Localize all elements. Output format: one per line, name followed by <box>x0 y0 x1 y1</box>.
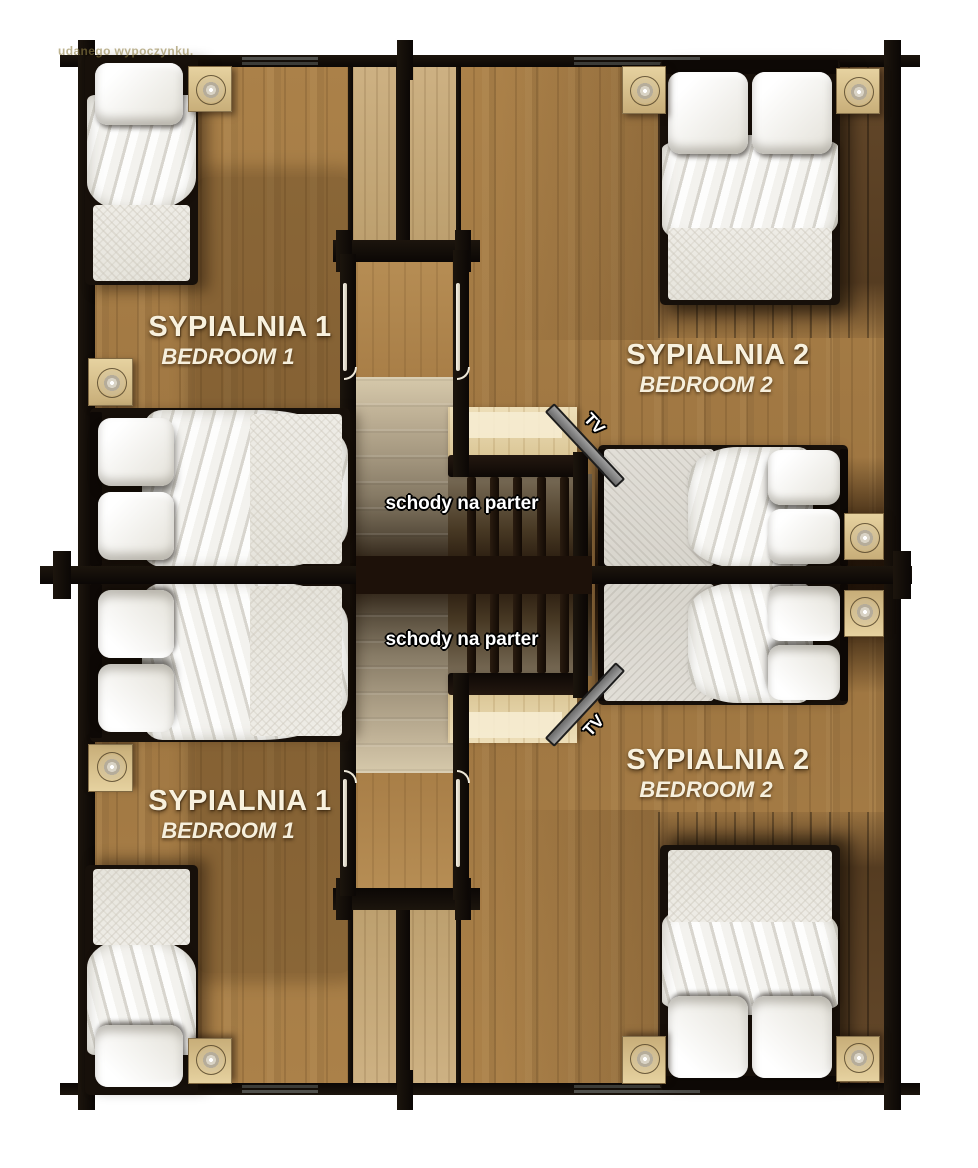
log-end-top-center <box>397 40 413 80</box>
room-label-bedroom1-bottom: SYPIALNIA 1 <box>148 785 331 818</box>
single-bed <box>85 865 198 1095</box>
nightstand <box>188 1038 232 1084</box>
bed-pillow <box>668 996 748 1078</box>
room-label-bedroom2-bottom: SYPIALNIA 2 <box>626 744 809 777</box>
bed-pillow <box>98 418 174 486</box>
door-leaf-right <box>456 779 460 867</box>
double-bed-mattress <box>250 586 342 736</box>
staircase-flight <box>356 377 453 575</box>
stair-landing-highlight <box>462 412 562 438</box>
double-bed-mattress <box>250 414 342 564</box>
headboard <box>662 1076 838 1090</box>
closet-divider-wall <box>396 67 410 240</box>
double-bed-right <box>598 445 848 570</box>
window-symbol <box>242 57 318 65</box>
room-sublabel-bedroom2-bottom: BEDROOM 2 <box>639 777 772 803</box>
log-end-middle-right <box>893 551 911 599</box>
double-bed-left <box>90 408 350 570</box>
bed-pillow <box>768 450 840 505</box>
nightstand <box>88 358 133 406</box>
double-bed-top <box>660 845 840 1090</box>
log-end-middle-left <box>53 551 71 599</box>
nightstand <box>622 1036 666 1084</box>
lamp-icon <box>844 1043 874 1073</box>
room-label-bedroom2-top: SYPIALNIA 2 <box>626 339 809 372</box>
bed-pillow <box>98 590 174 658</box>
room-sublabel-bedroom1-top: BEDROOM 1 <box>161 344 294 370</box>
room-label-bedroom1-top: SYPIALNIA 1 <box>148 311 331 344</box>
closet-side-wall-right <box>456 905 461 1083</box>
nightstand <box>836 68 880 114</box>
bed-pillow <box>668 72 748 154</box>
nightstand <box>188 66 232 112</box>
closet-divider-wall <box>396 910 410 1083</box>
bed-pillow <box>752 72 832 154</box>
lamp-icon <box>844 77 874 107</box>
stair-hall-floor <box>356 262 453 380</box>
closet-side-wall-right <box>456 67 461 245</box>
single-bed-pillow <box>95 1025 183 1087</box>
bed-pillow <box>768 645 840 700</box>
nightstand <box>622 66 666 114</box>
exterior-wall-right <box>884 40 901 575</box>
bed-pillow <box>752 996 832 1078</box>
unit-bottom <box>0 575 978 1113</box>
nightstand <box>844 513 884 560</box>
stairs-label-bottom: schody na parter <box>385 629 538 651</box>
door-leaf-left <box>343 283 347 371</box>
unit-layout <box>0 575 978 1113</box>
exterior-wall-right <box>884 575 901 1110</box>
staircase-flight <box>356 575 453 773</box>
lamp-icon <box>850 523 880 553</box>
bed-pillow <box>98 492 174 560</box>
bed-pillow <box>768 509 840 564</box>
single-bed-pillow <box>95 63 183 125</box>
room-sublabel-bedroom2-top: BEDROOM 2 <box>639 372 772 398</box>
nightstand <box>88 744 133 792</box>
bed-pillow <box>768 586 840 641</box>
nightstand <box>844 590 884 637</box>
lamp-icon <box>97 368 127 398</box>
single-bed <box>85 55 198 285</box>
bed-pillow <box>98 664 174 732</box>
double-bed-mattress <box>668 228 832 300</box>
room-sublabel-bedroom1-bottom: BEDROOM 1 <box>161 818 294 844</box>
single-bed-mattress <box>93 869 190 945</box>
watermark-text: udanego wypoczynku. <box>58 44 194 58</box>
lamp-icon <box>630 1044 660 1074</box>
closet-side-wall-left <box>348 67 353 245</box>
middle-wall-right-segment <box>590 566 912 584</box>
stair-hall-floor <box>356 770 453 888</box>
double-bed-right <box>598 580 848 705</box>
closet-side-wall-left <box>348 905 353 1083</box>
middle-wall-left-segment <box>40 566 358 584</box>
window-symbol <box>242 1085 318 1093</box>
stairwell-middle-gap <box>356 556 592 594</box>
lamp-icon <box>97 752 127 782</box>
door-leaf-left <box>343 779 347 867</box>
stairs-label-top: schody na parter <box>385 493 538 515</box>
lamp-icon <box>196 75 226 105</box>
single-bed-mattress <box>93 205 190 281</box>
door-leaf-right <box>456 283 460 371</box>
lamp-icon <box>196 1045 226 1075</box>
double-bed-left <box>90 580 350 742</box>
nightstand <box>836 1036 880 1082</box>
floor-plan: udanego wypoczynku. SYPIALNIA 1 BEDROOM … <box>0 0 978 1168</box>
lamp-icon <box>630 76 660 106</box>
log-end-top-center <box>397 1070 413 1110</box>
double-bed-top <box>660 60 840 305</box>
double-bed-mattress <box>668 850 832 922</box>
lamp-icon <box>850 597 880 627</box>
